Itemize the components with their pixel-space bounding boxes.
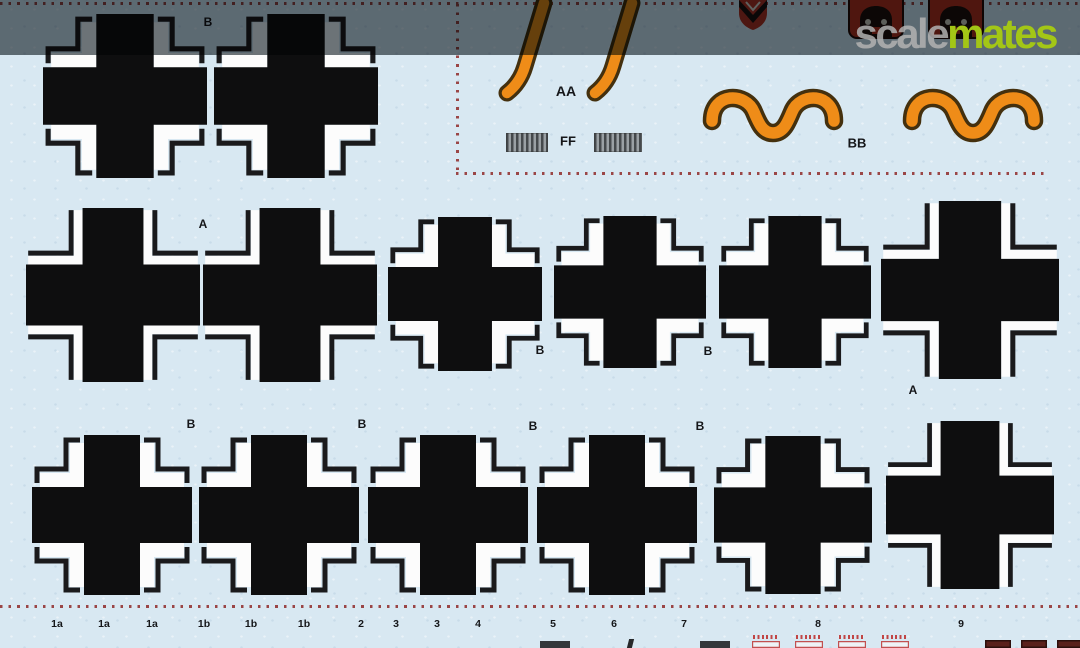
dotted-line	[456, 172, 1047, 175]
redbox-cutoff-decal	[795, 641, 823, 648]
balkenkreuz-cross-decal	[881, 201, 1059, 379]
dark-cutoff-decal	[540, 641, 570, 648]
decal-sheet: AA FF BB BABBABBBB 1a1a1a1b1b1b233456789	[0, 0, 1080, 648]
orange-wave-decal	[704, 84, 842, 141]
index-label: 7	[681, 619, 687, 630]
index-label: 2	[358, 619, 364, 630]
balkenkreuz-cross-decal	[26, 208, 200, 382]
balkenkreuz-cross-decal	[886, 421, 1054, 589]
letter-marker: B	[187, 418, 196, 430]
balkenkreuz-cross-decal	[32, 435, 192, 595]
striped-band-decal	[594, 133, 642, 152]
index-label: 1b	[245, 619, 257, 630]
tick-cutoff-decal	[627, 639, 634, 648]
index-label: 6	[611, 619, 617, 630]
index-label: 1a	[98, 619, 110, 630]
decal-sheet-photo: AA FF BB BABBABBBB 1a1a1a1b1b1b233456789…	[0, 0, 1080, 648]
balkenkreuz-cross-decal	[714, 436, 872, 594]
index-label: 3	[434, 619, 440, 630]
letter-marker: A	[909, 384, 918, 396]
index-label: 4	[475, 619, 481, 630]
redbox-cutoff-decal	[881, 641, 909, 648]
maroon-cutoff-decal	[1057, 640, 1080, 648]
index-label: 1b	[198, 619, 210, 630]
maroon-cutoff-decal	[1021, 640, 1047, 648]
index-label: 5	[550, 619, 556, 630]
redbox-cutoff-decal	[752, 641, 780, 648]
letter-marker: B	[704, 345, 713, 357]
label-ff: FF	[560, 135, 576, 148]
dark-cutoff-decal	[700, 641, 730, 648]
redbox-cutoff-decal	[838, 641, 866, 648]
index-label: 8	[815, 619, 821, 630]
watermark-scale-text: scale	[854, 10, 947, 57]
index-label: 3	[393, 619, 399, 630]
balkenkreuz-cross-decal	[719, 216, 871, 368]
orange-wave-decal	[904, 84, 1042, 141]
balkenkreuz-cross-decal	[368, 435, 528, 595]
index-label: 1b	[298, 619, 310, 630]
maroon-cutoff-decal	[985, 640, 1011, 648]
balkenkreuz-cross-decal	[199, 435, 359, 595]
label-aa: AA	[556, 84, 576, 98]
letter-marker: A	[199, 218, 208, 230]
letter-marker: B	[529, 420, 538, 432]
label-bb: BB	[848, 137, 867, 150]
index-label: 9	[958, 619, 964, 630]
letter-marker: B	[696, 420, 705, 432]
balkenkreuz-cross-decal	[554, 216, 706, 368]
letter-marker: B	[536, 344, 545, 356]
letter-marker: B	[358, 418, 367, 430]
balkenkreuz-cross-decal	[388, 217, 542, 371]
striped-band-decal	[506, 133, 548, 152]
scalemates-watermark: scalemates	[854, 13, 1056, 55]
balkenkreuz-cross-decal	[203, 208, 377, 382]
watermark-mates-text: mates	[947, 10, 1056, 57]
balkenkreuz-cross-decal	[537, 435, 697, 595]
dotted-line	[0, 605, 1080, 608]
index-label: 1a	[51, 619, 63, 630]
index-label: 1a	[146, 619, 158, 630]
